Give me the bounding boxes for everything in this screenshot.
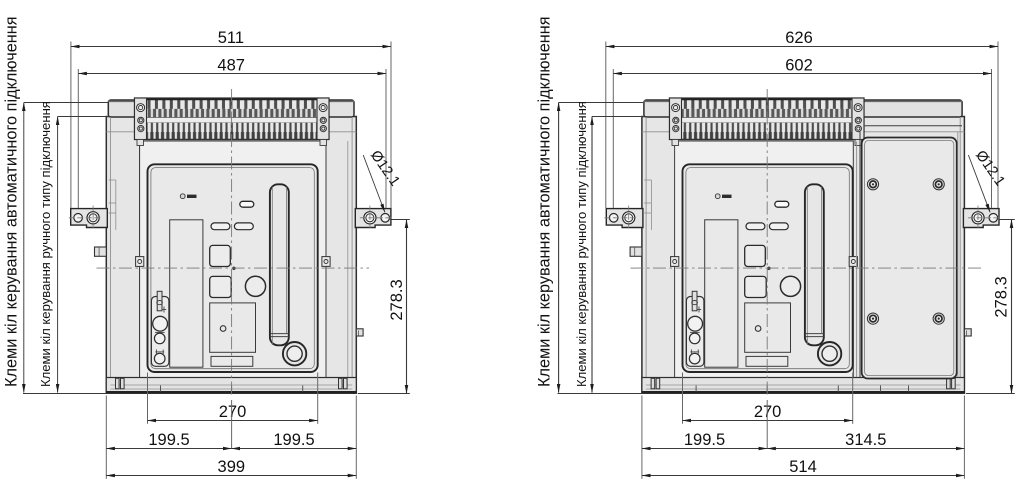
svg-text:602: 602: [785, 57, 813, 75]
svg-text:199.5: 199.5: [273, 431, 314, 449]
svg-text:Клеми кіл керування автоматичн: Клеми кіл керування автоматичного підклю…: [3, 16, 21, 387]
svg-text:399: 399: [218, 458, 246, 476]
svg-text:199.5: 199.5: [148, 431, 189, 449]
svg-text:487: 487: [217, 57, 245, 75]
svg-text:514: 514: [789, 458, 817, 476]
svg-text:278.3: 278.3: [388, 279, 406, 320]
svg-text:Клеми кіл керування ручного ти: Клеми кіл керування ручного типу підключ…: [38, 101, 53, 387]
svg-text:270: 270: [219, 403, 247, 421]
svg-text:Клеми кіл керування автоматичн: Клеми кіл керування автоматичного підклю…: [536, 16, 554, 387]
svg-text:199.5: 199.5: [684, 431, 725, 449]
svg-text:278.3: 278.3: [993, 276, 1011, 317]
svg-text:314.5: 314.5: [845, 431, 886, 449]
svg-text:511: 511: [218, 29, 244, 47]
svg-text:626: 626: [785, 29, 813, 47]
svg-text:Клеми кіл керування ручного ти: Клеми кіл керування ручного типу підключ…: [574, 101, 589, 387]
